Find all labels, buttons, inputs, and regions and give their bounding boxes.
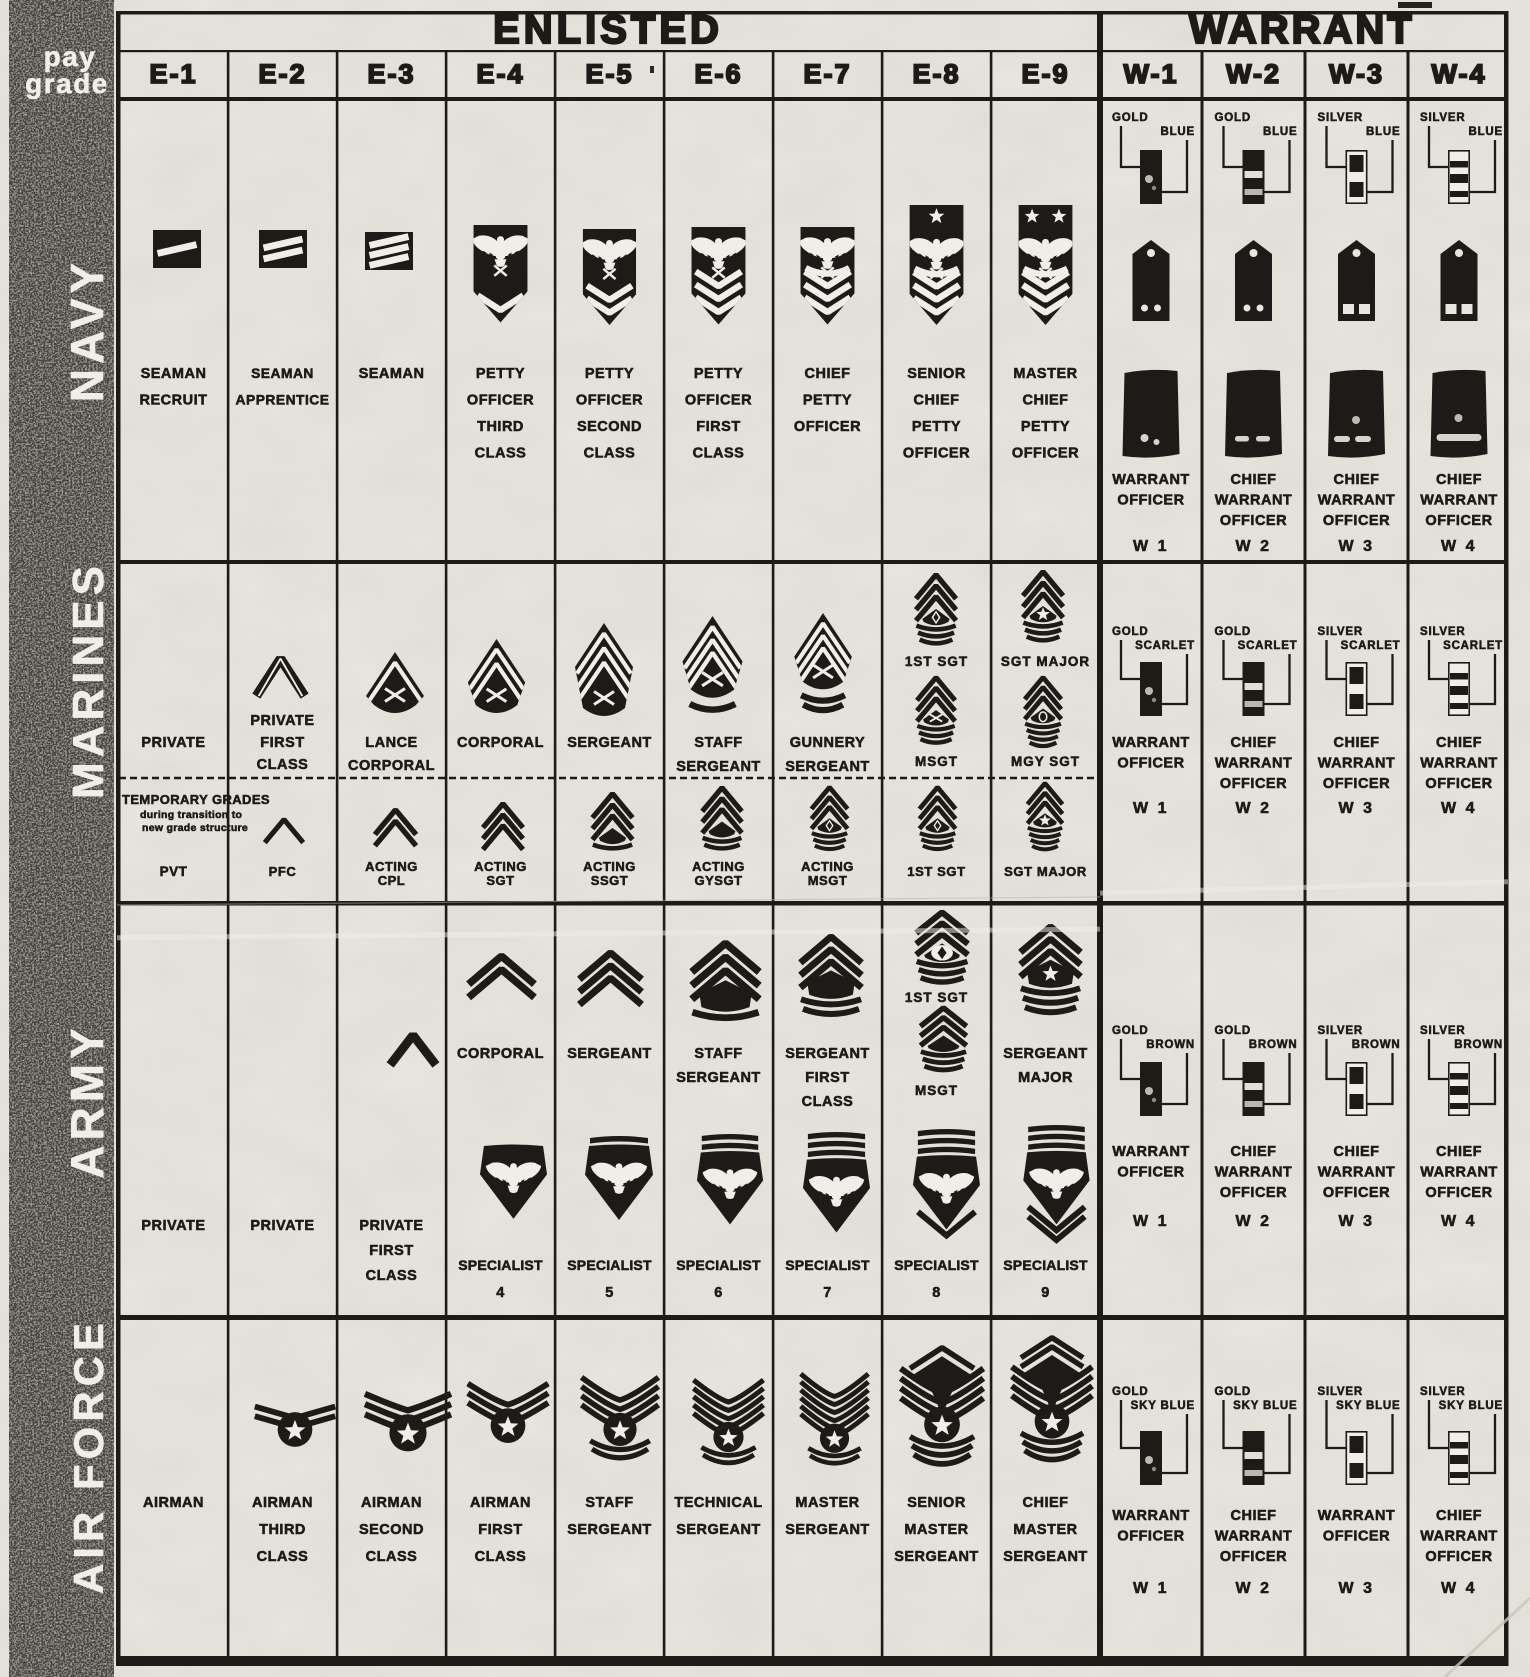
svg-text:CHIEF: CHIEF	[805, 366, 851, 382]
svg-text:MSGT: MSGT	[915, 754, 958, 769]
svg-text:E-3: E-3	[367, 59, 415, 89]
svg-text:GOLD: GOLD	[1112, 1386, 1148, 1398]
svg-text:GOLD: GOLD	[1215, 626, 1251, 638]
svg-text:SENIOR: SENIOR	[907, 1495, 966, 1511]
svg-text:GOLD: GOLD	[1215, 1386, 1251, 1398]
svg-text:SERGEANT: SERGEANT	[567, 1046, 652, 1062]
svg-text:W 1: W 1	[1133, 1580, 1169, 1597]
svg-text:BROWN: BROWN	[1454, 1039, 1503, 1051]
svg-text:E-6: E-6	[694, 59, 742, 89]
svg-text:SEAMAN: SEAMAN	[251, 366, 314, 381]
svg-text:CHIEF: CHIEF	[1334, 1144, 1380, 1160]
svg-text:CORPORAL: CORPORAL	[457, 1046, 544, 1062]
svg-text:W 4: W 4	[1441, 800, 1477, 817]
svg-text:GOLD: GOLD	[1215, 112, 1251, 124]
svg-text:THIRD: THIRD	[477, 419, 524, 435]
svg-text:BLUE: BLUE	[1366, 126, 1401, 138]
svg-text:GYSGT: GYSGT	[694, 873, 742, 888]
svg-text:ACTING: ACTING	[692, 859, 745, 874]
svg-text:ACTING: ACTING	[583, 859, 636, 874]
svg-text:CORPORAL: CORPORAL	[457, 735, 544, 751]
svg-text:CHIEF: CHIEF	[1023, 1495, 1069, 1511]
svg-text:OFFICER: OFFICER	[1117, 1529, 1184, 1545]
svg-text:OFFICER: OFFICER	[1323, 1529, 1390, 1545]
svg-text:OFFICER: OFFICER	[1117, 756, 1184, 772]
svg-text:CHIEF: CHIEF	[1436, 1144, 1482, 1160]
svg-text:SILVER: SILVER	[1318, 112, 1363, 124]
svg-text:GOLD: GOLD	[1112, 1025, 1148, 1037]
svg-text:SERGEANT: SERGEANT	[785, 759, 870, 775]
svg-text:FIRST: FIRST	[369, 1243, 413, 1259]
svg-text:SCARLET: SCARLET	[1238, 640, 1298, 652]
svg-text:PETTY: PETTY	[585, 366, 634, 382]
svg-text:OFFICER: OFFICER	[576, 393, 643, 409]
svg-text:SILVER: SILVER	[1318, 626, 1363, 638]
svg-text:FIRST: FIRST	[260, 735, 304, 751]
svg-text:PRIVATE: PRIVATE	[250, 713, 314, 729]
svg-text:SILVER: SILVER	[1318, 1386, 1363, 1398]
svg-text:ACTING: ACTING	[365, 859, 418, 874]
svg-text:FIRST: FIRST	[696, 419, 740, 435]
svg-text:CHIEF: CHIEF	[1023, 393, 1069, 409]
svg-text:GOLD: GOLD	[1215, 1025, 1251, 1037]
svg-text:BROWN: BROWN	[1352, 1039, 1401, 1051]
svg-text:OFFICER: OFFICER	[1323, 776, 1390, 792]
svg-text:CLASS: CLASS	[257, 1549, 309, 1565]
svg-text:BLUE: BLUE	[1468, 126, 1503, 138]
svg-text:TECHNICAL: TECHNICAL	[674, 1495, 762, 1511]
svg-text:W 3: W 3	[1339, 1580, 1375, 1597]
svg-text:SEAMAN: SEAMAN	[141, 366, 207, 382]
svg-text:6: 6	[714, 1285, 723, 1301]
svg-text:W-4: W-4	[1432, 59, 1487, 89]
svg-text:WARRANT: WARRANT	[1420, 756, 1498, 772]
svg-text:WARRANT: WARRANT	[1215, 1165, 1293, 1181]
svg-text:GOLD: GOLD	[1112, 112, 1148, 124]
svg-text:7: 7	[823, 1285, 832, 1301]
svg-text:SERGEANT: SERGEANT	[567, 1522, 652, 1538]
svg-text:SKY BLUE: SKY BLUE	[1439, 1400, 1503, 1412]
svg-text:W-1: W-1	[1124, 59, 1179, 89]
svg-text:W 1: W 1	[1133, 538, 1169, 555]
svg-text:WARRANT: WARRANT	[1112, 735, 1190, 751]
svg-text:SILVER: SILVER	[1318, 1025, 1363, 1037]
svg-text:SERGEANT: SERGEANT	[567, 735, 652, 751]
svg-text:OFFICER: OFFICER	[1117, 1165, 1184, 1181]
svg-text:AIR FORCE: AIR FORCE	[65, 1318, 112, 1594]
svg-text:SERGEANT: SERGEANT	[676, 1070, 761, 1086]
svg-text:PRIVATE: PRIVATE	[141, 735, 205, 751]
svg-text:CHIEF: CHIEF	[1231, 735, 1277, 751]
svg-text:WARRANT: WARRANT	[1318, 1165, 1396, 1181]
svg-text:SEAMAN: SEAMAN	[359, 366, 425, 382]
svg-text:W 2: W 2	[1236, 538, 1272, 555]
svg-text:CHIEF: CHIEF	[1231, 1508, 1277, 1524]
svg-text:1ST SGT: 1ST SGT	[905, 654, 968, 669]
svg-text:BLUE: BLUE	[1263, 126, 1298, 138]
svg-text:AIRMAN: AIRMAN	[361, 1495, 422, 1511]
svg-text:CHIEF: CHIEF	[1231, 1144, 1277, 1160]
svg-text:W 3: W 3	[1339, 1213, 1375, 1230]
svg-text:9: 9	[1041, 1285, 1050, 1301]
svg-text:OFFICER: OFFICER	[1323, 513, 1390, 529]
svg-text:WARRANT: WARRANT	[1318, 1508, 1396, 1524]
svg-text:OFFICER: OFFICER	[467, 393, 534, 409]
svg-text:SERGEANT: SERGEANT	[676, 1522, 761, 1538]
svg-text:SERGEANT: SERGEANT	[785, 1046, 870, 1062]
svg-text:SSGT: SSGT	[591, 873, 628, 888]
svg-text:WARRANT: WARRANT	[1215, 756, 1293, 772]
svg-text:OFFICER: OFFICER	[1220, 1549, 1287, 1565]
svg-text:ACTING: ACTING	[474, 859, 527, 874]
svg-text:CLASS: CLASS	[366, 1549, 418, 1565]
svg-text:SERGEANT: SERGEANT	[676, 759, 761, 775]
svg-text:SERGEANT: SERGEANT	[1003, 1549, 1088, 1565]
svg-text:SGT MAJOR: SGT MAJOR	[1001, 654, 1090, 669]
svg-text:W-3: W-3	[1329, 59, 1384, 89]
svg-text:W 3: W 3	[1339, 538, 1375, 555]
svg-text:AIRMAN: AIRMAN	[143, 1495, 204, 1511]
svg-text:WARRANT: WARRANT	[1112, 1144, 1190, 1160]
svg-text:W 2: W 2	[1236, 800, 1272, 817]
svg-text:RECRUIT: RECRUIT	[140, 393, 208, 409]
svg-text:SILVER: SILVER	[1420, 626, 1465, 638]
svg-text:MASTER: MASTER	[1013, 366, 1077, 382]
svg-text:OFFICER: OFFICER	[1425, 776, 1492, 792]
svg-text:GUNNERY: GUNNERY	[790, 735, 865, 751]
svg-text:LANCE: LANCE	[365, 735, 417, 751]
svg-text:E-1: E-1	[149, 59, 197, 89]
svg-text:PETTY: PETTY	[803, 393, 852, 409]
svg-text:NAVY: NAVY	[61, 258, 113, 402]
svg-text:OFFICER: OFFICER	[1323, 1185, 1390, 1201]
svg-text:CHIEF: CHIEF	[1436, 735, 1482, 751]
svg-text:SECOND: SECOND	[577, 419, 642, 435]
svg-text:GOLD: GOLD	[1112, 626, 1148, 638]
svg-text:OFFICER: OFFICER	[1425, 513, 1492, 529]
svg-text:SPECIALIST: SPECIALIST	[894, 1257, 979, 1273]
svg-text:MAJOR: MAJOR	[1018, 1070, 1073, 1086]
svg-text:W 4: W 4	[1441, 1580, 1477, 1597]
svg-text:BLUE: BLUE	[1160, 126, 1195, 138]
svg-text:W 3: W 3	[1339, 800, 1375, 817]
svg-text:SPECIALIST: SPECIALIST	[676, 1257, 761, 1273]
svg-text:PRIVATE: PRIVATE	[359, 1218, 423, 1234]
svg-text:W 2: W 2	[1236, 1213, 1272, 1230]
svg-text:E-4: E-4	[476, 59, 524, 89]
svg-text:E-8: E-8	[912, 59, 960, 89]
svg-text:OFFICER: OFFICER	[1220, 1185, 1287, 1201]
svg-text:SCARLET: SCARLET	[1443, 640, 1503, 652]
svg-text:PETTY: PETTY	[912, 419, 961, 435]
svg-text:SPECIALIST: SPECIALIST	[567, 1257, 652, 1273]
svg-text:SCARLET: SCARLET	[1135, 640, 1195, 652]
svg-text:OFFICER: OFFICER	[1220, 776, 1287, 792]
svg-text:WARRANT: WARRANT	[1420, 1529, 1498, 1545]
svg-text:OFFICER: OFFICER	[903, 446, 970, 462]
svg-text:MARINES: MARINES	[64, 561, 113, 799]
svg-text:SECOND: SECOND	[359, 1522, 424, 1538]
svg-text:W 1: W 1	[1133, 800, 1169, 817]
svg-text:SERGEANT: SERGEANT	[894, 1549, 979, 1565]
svg-text:CLASS: CLASS	[475, 1549, 527, 1565]
svg-text:E-7: E-7	[803, 59, 851, 89]
svg-text:SKY BLUE: SKY BLUE	[1131, 1400, 1195, 1412]
svg-text:SENIOR: SENIOR	[907, 366, 966, 382]
svg-text:SILVER: SILVER	[1420, 1025, 1465, 1037]
svg-text:TEMPORARY GRADES: TEMPORARY GRADES	[122, 792, 270, 807]
svg-text:OFFICER: OFFICER	[1117, 493, 1184, 509]
svg-text:CLASS: CLASS	[257, 757, 309, 773]
svg-text:new grade structure: new grade structure	[142, 822, 248, 834]
svg-text:PFC: PFC	[269, 864, 297, 879]
svg-text:grade: grade	[25, 68, 109, 99]
svg-text:CPL: CPL	[378, 873, 406, 888]
svg-text:CORPORAL: CORPORAL	[348, 758, 435, 774]
svg-text:1ST SGT: 1ST SGT	[907, 864, 965, 879]
svg-text:WARRANT: WARRANT	[1189, 8, 1414, 52]
svg-text:PETTY: PETTY	[694, 366, 743, 382]
svg-text:W 4: W 4	[1441, 1213, 1477, 1230]
svg-text:WARRANT: WARRANT	[1112, 1508, 1190, 1524]
svg-text:1ST SGT: 1ST SGT	[905, 990, 968, 1005]
svg-text:WARRANT: WARRANT	[1318, 756, 1396, 772]
svg-text:CLASS: CLASS	[475, 446, 527, 462]
svg-text:PETTY: PETTY	[476, 366, 525, 382]
svg-text:MASTER: MASTER	[795, 1495, 859, 1511]
svg-text:STAFF: STAFF	[585, 1495, 633, 1511]
svg-text:THIRD: THIRD	[259, 1522, 306, 1538]
svg-text:WARRANT: WARRANT	[1318, 493, 1396, 509]
svg-text:SCARLET: SCARLET	[1341, 640, 1401, 652]
svg-text:WARRANT: WARRANT	[1420, 493, 1498, 509]
svg-text:CHIEF: CHIEF	[1334, 735, 1380, 751]
svg-text:MSGT: MSGT	[808, 873, 848, 888]
svg-text:CHIEF: CHIEF	[1231, 472, 1277, 488]
svg-text:WARRANT: WARRANT	[1112, 472, 1190, 488]
svg-text:MASTER: MASTER	[1013, 1522, 1077, 1538]
svg-text:E-5: E-5	[585, 59, 633, 89]
svg-text:SKY BLUE: SKY BLUE	[1233, 1400, 1297, 1412]
svg-text:SERGEANT: SERGEANT	[785, 1522, 870, 1538]
svg-text:OFFICER: OFFICER	[1012, 446, 1079, 462]
svg-text:BROWN: BROWN	[1249, 1039, 1298, 1051]
svg-text:APPRENTICE: APPRENTICE	[236, 393, 330, 408]
svg-text:CLASS: CLASS	[584, 446, 636, 462]
svg-text:WARRANT: WARRANT	[1215, 493, 1293, 509]
svg-text:WARRANT: WARRANT	[1420, 1165, 1498, 1181]
svg-text:PETTY: PETTY	[1021, 419, 1070, 435]
svg-text:CLASS: CLASS	[802, 1094, 854, 1110]
svg-text:MSGT: MSGT	[915, 1083, 958, 1098]
svg-text:E-9: E-9	[1021, 59, 1069, 89]
svg-text:SPECIALIST: SPECIALIST	[785, 1257, 870, 1273]
svg-text:AIRMAN: AIRMAN	[252, 1495, 313, 1511]
svg-text:MGY SGT: MGY SGT	[1011, 754, 1080, 769]
svg-text:OFFICER: OFFICER	[685, 393, 752, 409]
svg-text:8: 8	[932, 1285, 941, 1301]
svg-text:BROWN: BROWN	[1146, 1039, 1195, 1051]
svg-text:OFFICER: OFFICER	[1220, 513, 1287, 529]
svg-text:CLASS: CLASS	[693, 446, 745, 462]
svg-text:OFFICER: OFFICER	[1425, 1185, 1492, 1201]
svg-text:SKY BLUE: SKY BLUE	[1336, 1400, 1400, 1412]
svg-text:PRIVATE: PRIVATE	[250, 1218, 314, 1234]
svg-text:SPECIALIST: SPECIALIST	[1003, 1257, 1088, 1273]
svg-text:CHIEF: CHIEF	[1334, 472, 1380, 488]
svg-text:FIRST: FIRST	[805, 1070, 849, 1086]
svg-text:ARMY: ARMY	[61, 1023, 113, 1178]
svg-text:OFFICER: OFFICER	[1425, 1549, 1492, 1565]
svg-text:CHIEF: CHIEF	[1436, 1508, 1482, 1524]
svg-text:PVT: PVT	[160, 864, 188, 879]
svg-text:SERGEANT: SERGEANT	[1003, 1046, 1088, 1062]
svg-text:W-2: W-2	[1226, 59, 1281, 89]
svg-text:W 4: W 4	[1441, 538, 1477, 555]
svg-text:CHIEF: CHIEF	[914, 393, 960, 409]
svg-text:CLASS: CLASS	[366, 1268, 418, 1284]
svg-text:W 2: W 2	[1236, 1580, 1272, 1597]
svg-text:SILVER: SILVER	[1420, 112, 1465, 124]
svg-text:W 1: W 1	[1133, 1213, 1169, 1230]
svg-text:SPECIALIST: SPECIALIST	[458, 1257, 543, 1273]
svg-text:PRIVATE: PRIVATE	[141, 1218, 205, 1234]
svg-text:MASTER: MASTER	[904, 1522, 968, 1538]
svg-text:SGT MAJOR: SGT MAJOR	[1004, 864, 1087, 879]
svg-text:E-2: E-2	[258, 59, 306, 89]
svg-text:WARRANT: WARRANT	[1215, 1529, 1293, 1545]
svg-text:during transition to: during transition to	[140, 809, 242, 821]
svg-text:CHIEF: CHIEF	[1436, 472, 1482, 488]
svg-text:5: 5	[605, 1285, 614, 1301]
svg-text:STAFF: STAFF	[694, 1046, 742, 1062]
svg-text:AIRMAN: AIRMAN	[470, 1495, 531, 1511]
svg-text:OFFICER: OFFICER	[794, 419, 861, 435]
svg-text:FIRST: FIRST	[478, 1522, 522, 1538]
svg-text:ENLISTED: ENLISTED	[493, 8, 723, 52]
svg-text:SILVER: SILVER	[1420, 1386, 1465, 1398]
svg-text:STAFF: STAFF	[694, 735, 742, 751]
svg-text:ACTING: ACTING	[801, 859, 854, 874]
svg-text:SGT: SGT	[486, 873, 514, 888]
svg-text:4: 4	[496, 1285, 505, 1301]
